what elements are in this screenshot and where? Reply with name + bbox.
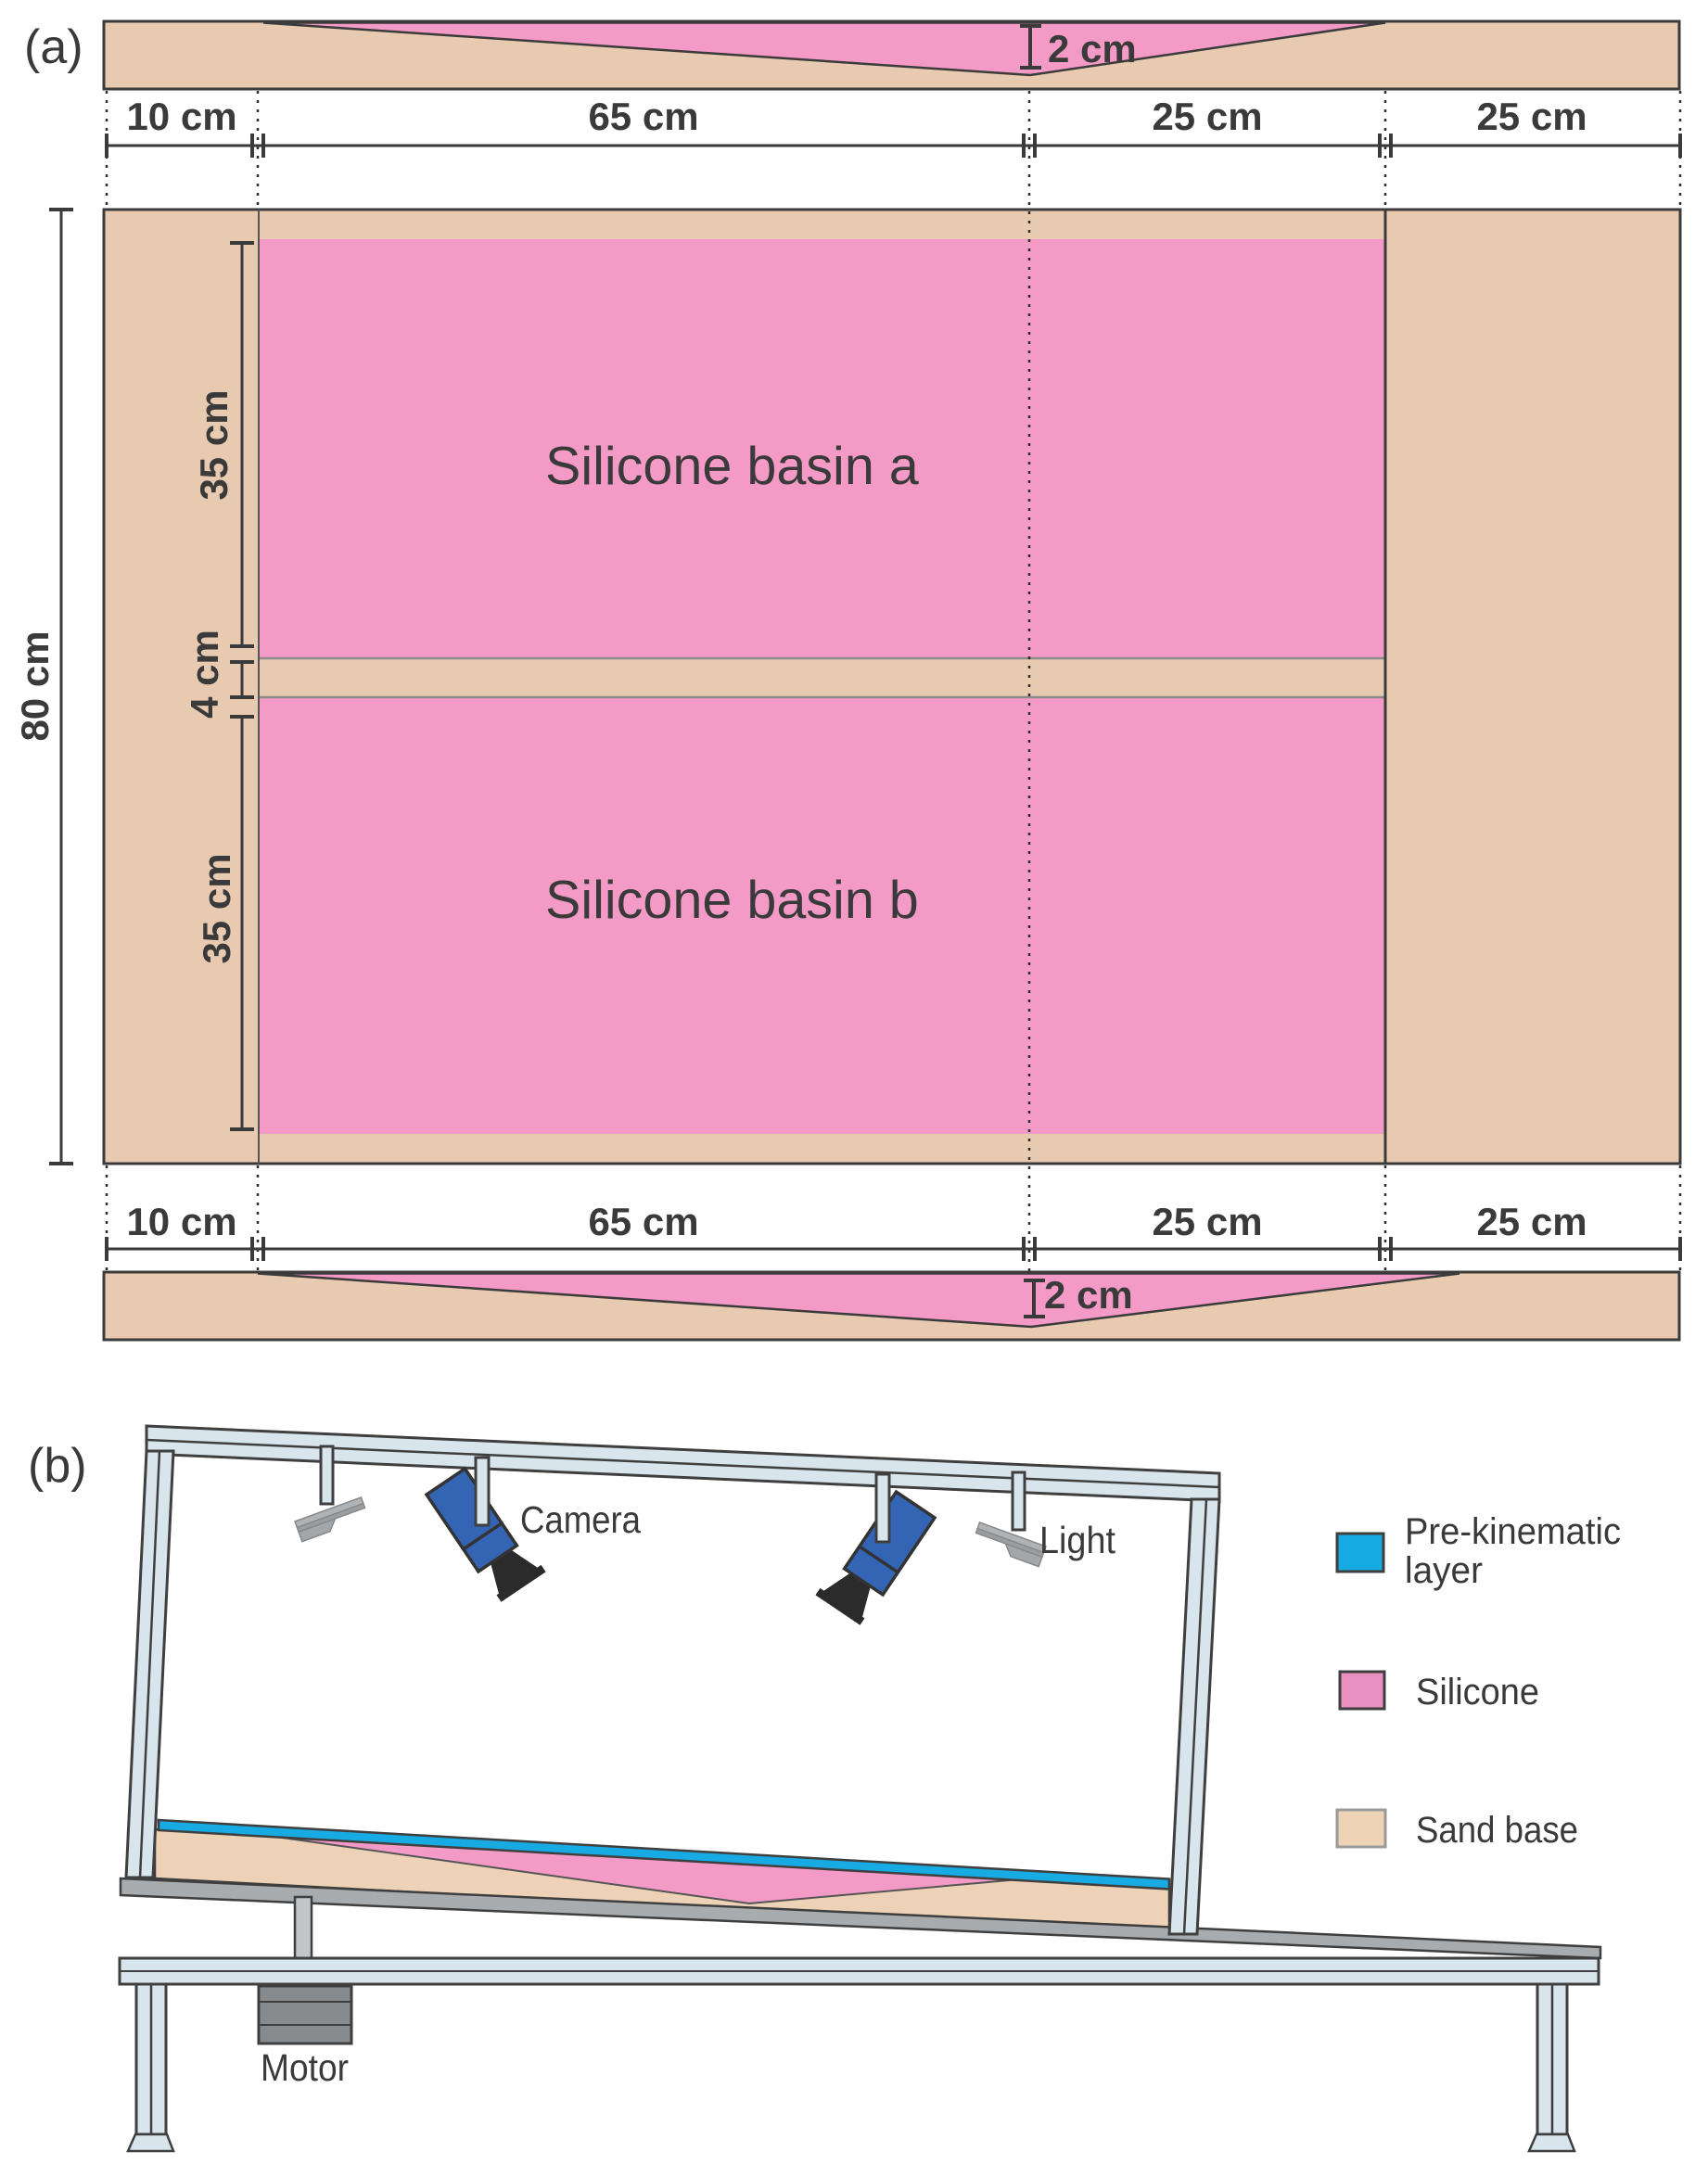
svg-text:25 cm: 25 cm [1152, 1200, 1262, 1243]
svg-text:(a): (a) [24, 20, 83, 74]
svg-text:4 cm: 4 cm [183, 630, 226, 719]
svg-text:35 cm: 35 cm [192, 389, 236, 500]
svg-text:Silicone basin a: Silicone basin a [545, 437, 919, 496]
svg-text:Motor: Motor [261, 2046, 349, 2089]
svg-text:65 cm: 65 cm [588, 1200, 698, 1243]
svg-text:35 cm: 35 cm [195, 853, 238, 963]
svg-text:Pre-kinematic: Pre-kinematic [1405, 1511, 1621, 1552]
svg-text:Light: Light [1039, 1519, 1116, 1561]
svg-text:layer: layer [1405, 1550, 1483, 1591]
svg-text:Silicone: Silicone [1416, 1672, 1539, 1712]
svg-text:10 cm: 10 cm [126, 95, 236, 138]
svg-text:25 cm: 25 cm [1476, 1200, 1587, 1243]
svg-text:25 cm: 25 cm [1152, 95, 1262, 138]
svg-text:80 cm: 80 cm [13, 630, 57, 741]
svg-text:2 cm: 2 cm [1044, 1273, 1133, 1317]
svg-text:Camera: Camera [520, 1498, 641, 1541]
svg-text:Sand base: Sand base [1416, 1810, 1578, 1851]
svg-text:10 cm: 10 cm [126, 1200, 236, 1243]
svg-text:Silicone basin b: Silicone basin b [545, 871, 919, 930]
svg-text:(b): (b) [28, 1439, 87, 1493]
svg-text:25 cm: 25 cm [1476, 95, 1587, 138]
svg-text:65 cm: 65 cm [588, 95, 698, 138]
svg-text:2 cm: 2 cm [1048, 27, 1137, 70]
